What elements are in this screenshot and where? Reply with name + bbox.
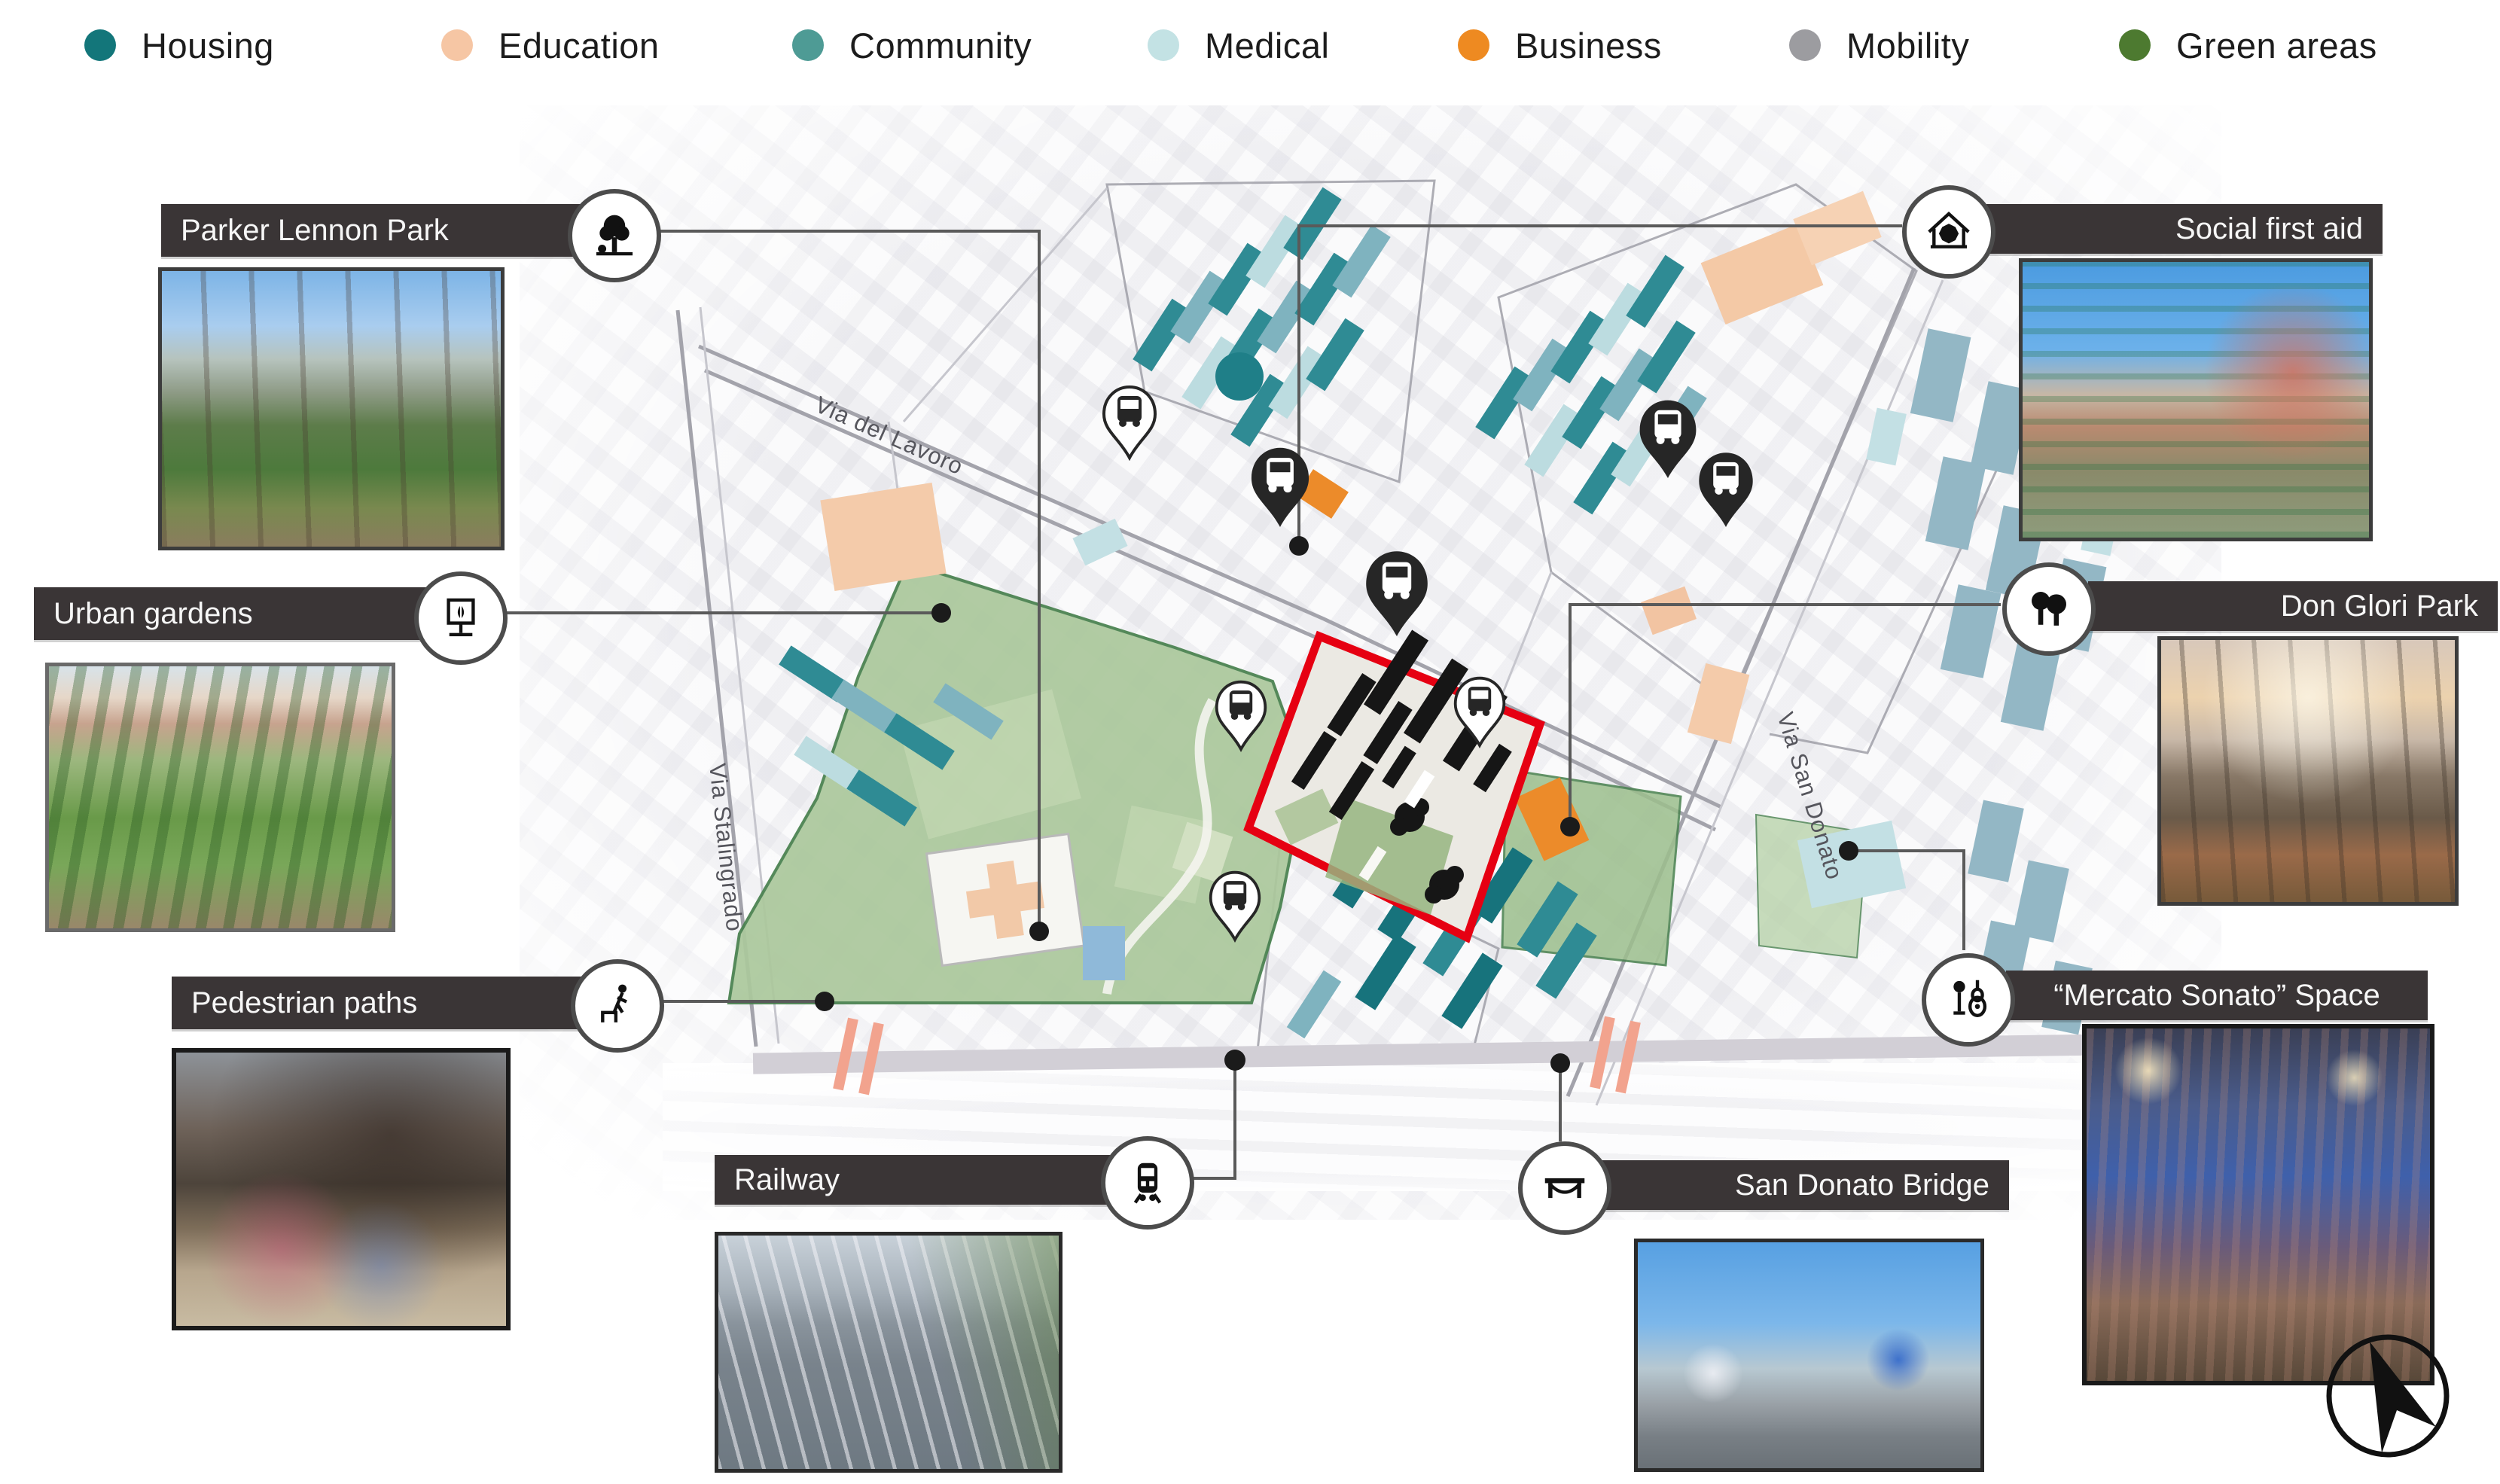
photo-pedestrian-paths bbox=[172, 1048, 511, 1330]
callout-label: Don Glori Park bbox=[2281, 590, 2478, 623]
callout-bar-railway: Railway bbox=[715, 1155, 1122, 1205]
legend-label: Community bbox=[849, 25, 1032, 66]
legend: Housing Education Community Medical Busi… bbox=[0, 14, 2500, 77]
legend-label: Mobility bbox=[1846, 25, 1969, 66]
legend-item-business: Business bbox=[1458, 14, 1662, 77]
street-label-via-stalingrado: Via Stalingrado bbox=[704, 762, 748, 933]
urban-analysis-figure: Via del Lavoro Via Stalingrado Via San D… bbox=[0, 0, 2500, 1484]
callout-bar-urban-gardens: Urban gardens bbox=[34, 587, 436, 640]
callout-badge-urban-gardens bbox=[414, 571, 508, 665]
callout-label: Urban gardens bbox=[53, 597, 253, 631]
street-label-via-del-lavoro: Via del Lavoro bbox=[811, 391, 968, 480]
photo-urban-gardens bbox=[45, 663, 395, 932]
callout-bar-social-first-aid: Social first aid bbox=[1986, 204, 2383, 254]
callout-badge-pedestrian-paths bbox=[571, 959, 664, 1053]
photo-san-donato-bridge bbox=[1634, 1239, 1984, 1472]
legend-item-education: Education bbox=[441, 14, 660, 77]
legend-label: Business bbox=[1515, 25, 1662, 66]
north-arrow-compass bbox=[2323, 1331, 2453, 1461]
legend-item-community: Community bbox=[792, 14, 1032, 77]
education-color-dot bbox=[441, 29, 473, 61]
housing-color-dot bbox=[84, 29, 116, 61]
garden-planter-icon bbox=[434, 592, 487, 644]
medical-color-dot bbox=[1148, 29, 1179, 61]
business-color-dot bbox=[1458, 29, 1489, 61]
tree-icon bbox=[588, 209, 641, 262]
callout-bar-parker-lennon-park: Parker Lennon Park bbox=[161, 204, 581, 257]
callout-badge-don-glori-park bbox=[2002, 562, 2096, 656]
twin-trees-icon bbox=[2023, 583, 2075, 635]
callout-label: “Mercato Sonato” Space bbox=[2053, 979, 2380, 1013]
callout-badge-parker-lennon-park bbox=[568, 189, 661, 282]
train-icon bbox=[1121, 1156, 1174, 1209]
callout-badge-mercato-sonato bbox=[1922, 953, 2015, 1047]
photo-social-first-aid bbox=[2019, 258, 2373, 541]
callout-bar-san-donato-bridge: San Donato Bridge bbox=[1599, 1160, 2009, 1210]
callout-label: Pedestrian paths bbox=[191, 986, 417, 1020]
callout-badge-railway bbox=[1101, 1136, 1194, 1230]
community-color-dot bbox=[792, 29, 824, 61]
legend-item-green-areas: Green areas bbox=[2119, 14, 2377, 77]
railway-corridor bbox=[753, 1034, 2108, 1074]
callout-label: Railway bbox=[734, 1163, 840, 1197]
green-areas-color-dot bbox=[2119, 29, 2151, 61]
round-community-building bbox=[1215, 352, 1264, 401]
legend-item-housing: Housing bbox=[84, 14, 274, 77]
callout-label: Parker Lennon Park bbox=[181, 214, 449, 248]
house-aid-icon bbox=[1922, 206, 1975, 258]
medical-building bbox=[1083, 926, 1125, 980]
pedestrian-icon bbox=[591, 980, 644, 1032]
music-icon bbox=[1942, 974, 1995, 1026]
callout-badge-san-donato-bridge bbox=[1518, 1141, 1611, 1235]
bridge-icon bbox=[1538, 1162, 1591, 1214]
callout-label: San Donato Bridge bbox=[1735, 1169, 1989, 1202]
photo-parker-lennon-park bbox=[158, 267, 505, 550]
photo-don-glori-park bbox=[2157, 636, 2459, 906]
legend-label: Education bbox=[498, 25, 660, 66]
callout-bar-mercato-sonato: “Mercato Sonato” Space bbox=[2006, 971, 2428, 1020]
legend-label: Medical bbox=[1205, 25, 1329, 66]
callout-bar-pedestrian-paths: Pedestrian paths bbox=[172, 977, 581, 1029]
callout-label: Social first aid bbox=[2175, 212, 2363, 246]
callout-bar-don-glori-park: Don Glori Park bbox=[2088, 581, 2498, 631]
mobility-color-dot bbox=[1789, 29, 1821, 61]
legend-label: Housing bbox=[142, 25, 274, 66]
school-building bbox=[926, 834, 1084, 966]
photo-railway bbox=[715, 1232, 1062, 1473]
legend-item-mobility: Mobility bbox=[1789, 14, 1969, 77]
legend-item-medical: Medical bbox=[1148, 14, 1329, 77]
legend-label: Green areas bbox=[2176, 25, 2377, 66]
park-area bbox=[729, 563, 1306, 1003]
callout-badge-social-first-aid bbox=[1902, 185, 1995, 279]
